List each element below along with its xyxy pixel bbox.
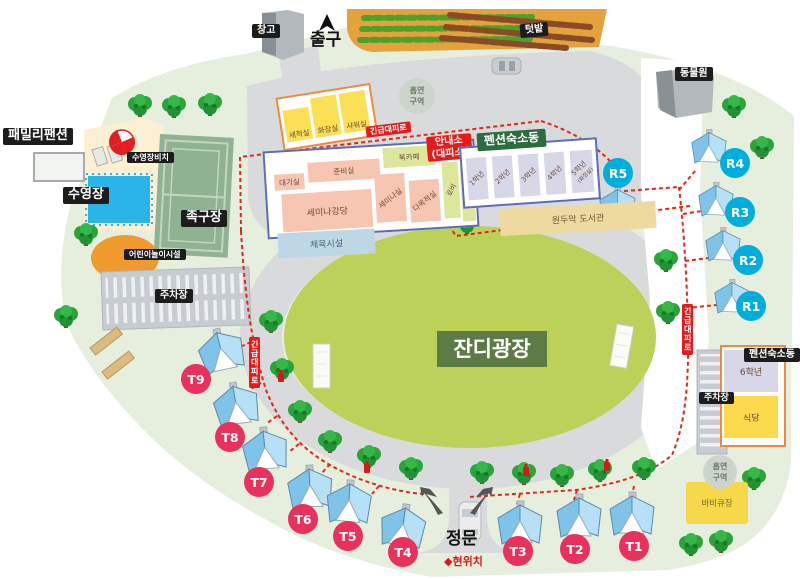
prep-room-label: 준비실 xyxy=(333,165,354,177)
grass-plaza-label: 잔디광장 xyxy=(437,331,547,367)
grade4-room: 4학년 xyxy=(544,152,567,195)
goal-left xyxy=(313,344,330,388)
sports-facility-strip: 체육시설 xyxy=(277,228,375,258)
current-location-label: ◆현위치 xyxy=(444,556,483,569)
pool-beach-label: 수영장비치 xyxy=(127,152,174,163)
garden-label: 텃밭 xyxy=(519,22,548,38)
seminar-room: 세미나실 xyxy=(374,173,407,223)
family-pension-building xyxy=(33,152,85,182)
prep-room: 준비실 xyxy=(307,158,380,182)
warehouse-label: 창고 xyxy=(252,24,280,38)
waiting-room: 대기실 xyxy=(274,173,305,191)
tent-marker-r5: R5 xyxy=(603,158,633,188)
tent-marker-t1: T1 xyxy=(619,531,649,561)
exit-label: 출구 xyxy=(310,31,341,51)
pension-east-label: 펜션숙소동 xyxy=(744,348,800,362)
exit-arrow-icon xyxy=(319,14,335,31)
sports-facility-label: 체육시설 xyxy=(310,236,344,251)
seminar-hall-label: 세미나강당 xyxy=(306,203,348,219)
grade1-label: 1학년 xyxy=(468,169,487,188)
grade4-label: 4학년 xyxy=(545,164,564,183)
current-location-text: 현위치 xyxy=(452,555,482,568)
main-gate-label: 정문 xyxy=(446,530,477,550)
grade5-room: 5학년 (화장실) xyxy=(570,150,595,193)
restaurant-label: 식당 xyxy=(742,410,759,424)
tent-marker-t7: T7 xyxy=(244,467,274,497)
grade1-room: 1학년 xyxy=(466,157,489,200)
parking-east-label: 주차장 xyxy=(699,392,734,404)
waiting-room-label: 대기실 xyxy=(279,176,300,188)
tent-marker-t8: T8 xyxy=(215,422,245,452)
lobby-label: 로비 xyxy=(444,182,459,198)
parking-west-label: 주차장 xyxy=(155,289,193,303)
bbq-label: 바비큐장 xyxy=(701,497,732,509)
tent-marker-t3: T3 xyxy=(503,536,533,566)
library-label: 원두막 도서관 xyxy=(551,211,604,227)
smoking-top-line1: 흡연 xyxy=(410,85,425,96)
family-pension-label: 패밀리팬션 xyxy=(3,128,73,145)
grade6-label: 6학년 xyxy=(740,365,762,378)
tent-marker-r3: R3 xyxy=(725,197,755,227)
seminar-hall: 세미나강당 xyxy=(281,189,373,232)
book-cafe-label: 북카페 xyxy=(398,150,419,162)
smoking-area-top: 흡연 구역 xyxy=(399,78,435,114)
jokgu-court-label: 족구장 xyxy=(181,210,227,227)
zoo-label: 동물원 xyxy=(675,67,713,81)
campground-map: 세척실 화장실 샤워실 대기실 준비실 북카페 세미나강당 세미나실 다목적실 … xyxy=(0,0,800,579)
grade2-label: 2학년 xyxy=(493,167,512,186)
grade2-room: 2학년 xyxy=(492,155,515,198)
children-play-label: 어린이놀이시설 xyxy=(124,249,186,260)
tent-marker-t2: T2 xyxy=(560,534,590,564)
multipurpose-room-label: 다목적실 xyxy=(411,188,439,214)
grade3-room: 3학년 xyxy=(518,153,541,196)
toilet-room: 화장실 xyxy=(310,94,342,138)
washroom-label: 세척실 xyxy=(288,127,310,141)
tent-marker-t6: T6 xyxy=(288,504,318,534)
washroom: 세척실 xyxy=(282,107,313,143)
smoking-bottom-line1: 흡연 xyxy=(713,461,728,472)
pool-label: 수영장 xyxy=(63,187,109,204)
smoking-bottom-line2: 구역 xyxy=(713,472,728,483)
emergency-route-ribbon-east: 긴급대피로 xyxy=(682,304,693,355)
multipurpose-room: 다목적실 xyxy=(409,179,442,223)
car-garden xyxy=(492,58,521,74)
shower-label: 샤워실 xyxy=(346,118,368,132)
seminar-room-label: 세미나실 xyxy=(376,185,404,211)
tent-marker-t9: T9 xyxy=(181,364,211,394)
toilet-label: 화장실 xyxy=(317,122,339,136)
tent-marker-r1: R1 xyxy=(736,291,766,321)
tent-marker-t5: T5 xyxy=(333,521,363,551)
tent-marker-r4: R4 xyxy=(720,148,750,178)
emergency-route-ribbon-west: 긴급대피로 xyxy=(249,337,260,388)
lobby: 로비 xyxy=(442,162,461,219)
smoking-area-bottom: 흡연 구역 xyxy=(703,455,737,489)
tent-marker-t4: T4 xyxy=(388,537,418,567)
smoking-top-line2: 구역 xyxy=(410,96,425,107)
tent-marker-r2: R2 xyxy=(733,245,763,275)
grade3-label: 3학년 xyxy=(519,165,538,184)
